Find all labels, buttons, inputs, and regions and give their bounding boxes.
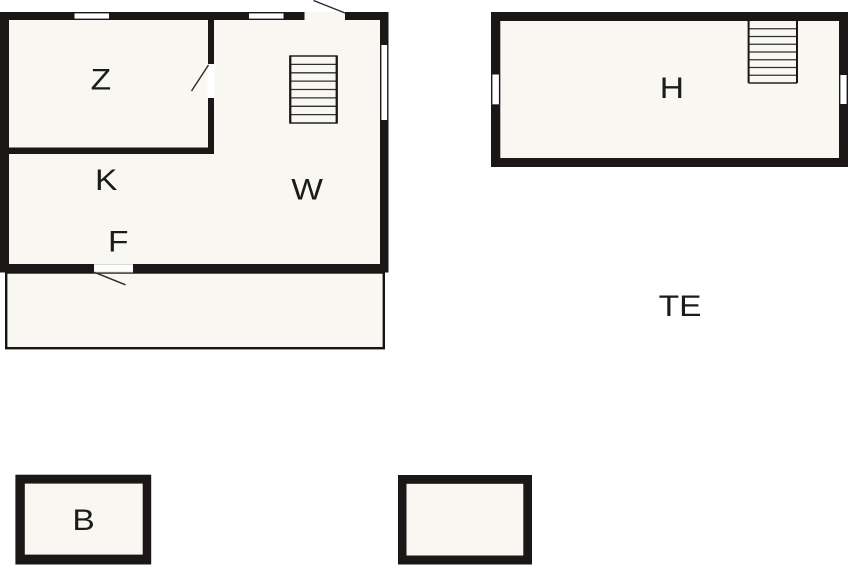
svg-text:K: K	[95, 163, 117, 197]
svg-text:Z: Z	[91, 62, 112, 96]
svg-text:H: H	[660, 71, 684, 105]
svg-text:B: B	[72, 503, 94, 537]
svg-text:TE: TE	[659, 289, 702, 323]
svg-text:W: W	[291, 172, 323, 206]
svg-text:F: F	[108, 224, 129, 258]
